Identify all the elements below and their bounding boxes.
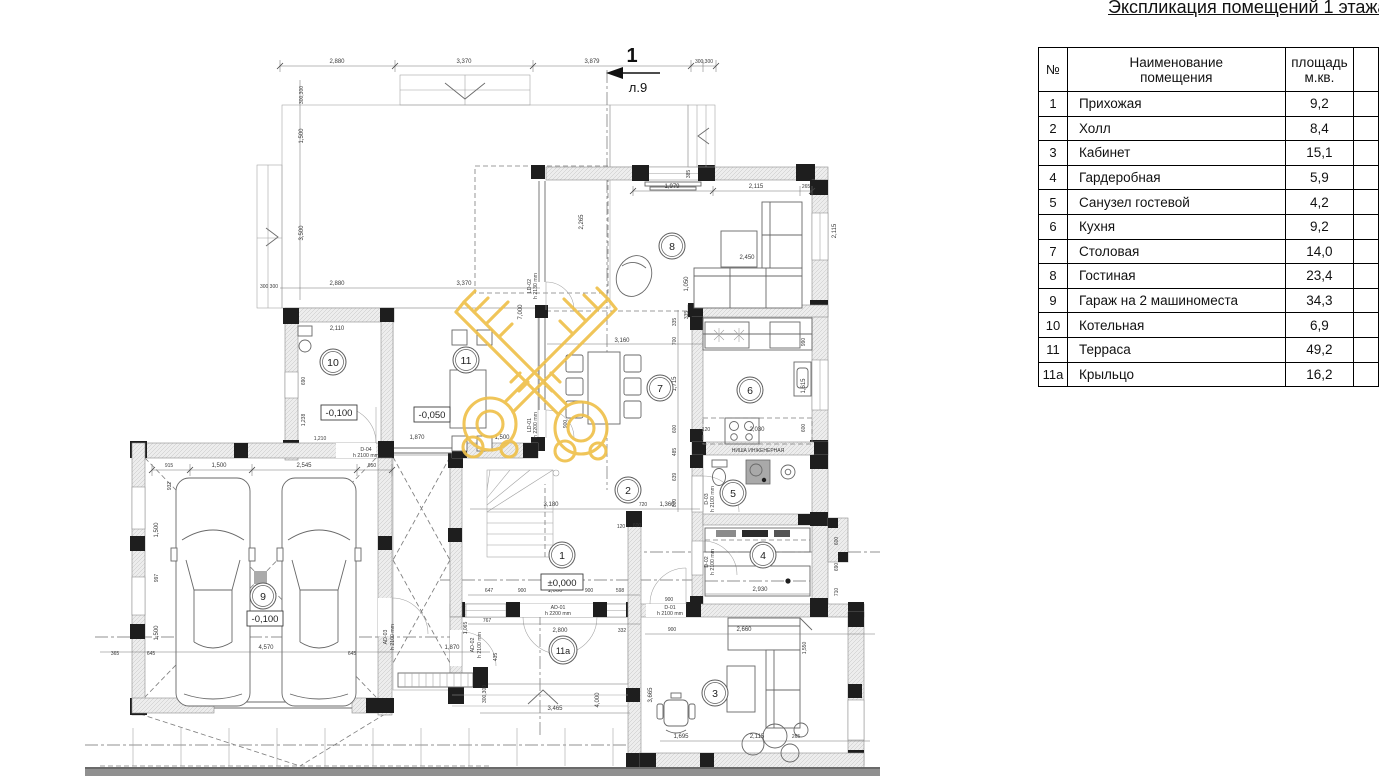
svg-text:932: 932 xyxy=(167,482,173,491)
svg-text:120: 120 xyxy=(702,427,711,433)
elevation-entry: ±0,000 xyxy=(541,574,583,590)
svg-text:3,180: 3,180 xyxy=(543,502,559,508)
desk-chair xyxy=(657,693,695,733)
svg-text:332: 332 xyxy=(618,628,627,634)
svg-text:3,665: 3,665 xyxy=(648,687,654,703)
svg-text:4,000: 4,000 xyxy=(595,692,601,708)
room-circle-11a: 11а xyxy=(549,636,577,664)
svg-text:600: 600 xyxy=(672,425,678,434)
svg-text:1,695: 1,695 xyxy=(673,734,689,740)
svg-text:600: 600 xyxy=(834,537,840,546)
floor-plan: 2,880 3,370 3,879 300,300 300,300 1,500 … xyxy=(0,0,900,782)
svg-text:2,110: 2,110 xyxy=(330,326,345,332)
elevation-boiler: -0,100 xyxy=(321,405,357,420)
svg-text:2,030: 2,030 xyxy=(749,427,765,433)
niche-label: НИША ИНЖЕНЕРНАЯ xyxy=(732,448,785,454)
svg-text:1,500: 1,500 xyxy=(211,463,227,469)
room-circle-8: 8 xyxy=(659,233,685,259)
svg-text:1,065: 1,065 xyxy=(463,622,469,635)
drawing-sheet: 2,880 3,370 3,879 300,300 300,300 1,500 … xyxy=(0,0,1379,782)
svg-text:AD-02: AD-02 xyxy=(470,638,476,653)
svg-text:990: 990 xyxy=(801,338,807,347)
table-row: 7Столовая14,0 xyxy=(1039,239,1379,264)
svg-text:AD-03: AD-03 xyxy=(383,630,389,645)
svg-text:710: 710 xyxy=(834,588,840,597)
svg-text:600: 600 xyxy=(801,424,807,433)
svg-text:690: 690 xyxy=(834,563,840,572)
svg-text:±0,000: ±0,000 xyxy=(548,578,577,589)
coffee-table xyxy=(721,231,757,267)
svg-text:1,238: 1,238 xyxy=(301,414,307,427)
svg-text:997: 997 xyxy=(154,574,160,583)
svg-text:h 2100 mm: h 2100 mm xyxy=(710,549,716,575)
svg-text:265: 265 xyxy=(802,184,811,190)
svg-text:-0,050: -0,050 xyxy=(419,410,446,421)
svg-text:300 300: 300 300 xyxy=(260,284,278,290)
room-circle-2: 2 xyxy=(615,477,641,503)
table-body: 1Прихожая9,22Холл8,43Кабинет15,14Гардеро… xyxy=(1039,92,1379,387)
car-2 xyxy=(277,478,361,706)
svg-text:335: 335 xyxy=(684,311,690,320)
svg-text:1,500: 1,500 xyxy=(154,625,160,641)
svg-text:2,660: 2,660 xyxy=(736,627,752,633)
svg-text:1,210: 1,210 xyxy=(314,436,327,442)
svg-text:900: 900 xyxy=(585,588,594,594)
svg-text:120: 120 xyxy=(617,524,626,530)
svg-text:720: 720 xyxy=(639,502,648,508)
svg-text:385: 385 xyxy=(686,170,692,179)
svg-text:2: 2 xyxy=(625,485,631,497)
svg-text:h 2100 mm: h 2100 mm xyxy=(657,611,683,617)
svg-text:6: 6 xyxy=(747,385,753,397)
svg-text:5: 5 xyxy=(730,488,736,500)
room-circle-7: 7 xyxy=(647,375,673,401)
svg-text:598: 598 xyxy=(616,588,625,594)
table-row: 6Кухня9,2 xyxy=(1039,214,1379,239)
svg-text:300,300: 300,300 xyxy=(482,685,488,703)
room-circle-3: 3 xyxy=(702,680,728,706)
svg-text:h 2200 mm: h 2200 mm xyxy=(533,412,539,438)
room-circle-11: 11 xyxy=(453,347,479,373)
svg-text:1,550: 1,550 xyxy=(802,642,808,655)
col-header-extra xyxy=(1354,48,1379,92)
room-circle-5: 5 xyxy=(720,480,746,506)
svg-text:900: 900 xyxy=(518,588,527,594)
svg-text:-0,100: -0,100 xyxy=(326,408,353,419)
svg-text:2,880: 2,880 xyxy=(329,281,345,287)
svg-text:2,880: 2,880 xyxy=(329,59,345,65)
svg-text:2,115: 2,115 xyxy=(749,184,764,190)
svg-text:600: 600 xyxy=(633,523,642,529)
svg-text:л.9: л.9 xyxy=(629,80,647,95)
room-circle-10: 10 xyxy=(320,349,346,375)
room-circle-1: 1 xyxy=(549,542,575,568)
svg-text:639: 639 xyxy=(672,473,678,482)
svg-text:1,870: 1,870 xyxy=(409,435,425,441)
svg-text:647: 647 xyxy=(485,588,494,594)
svg-text:1: 1 xyxy=(559,550,565,562)
svg-text:2,800: 2,800 xyxy=(552,628,568,634)
svg-text:1,500: 1,500 xyxy=(299,128,305,144)
svg-text:2,545: 2,545 xyxy=(296,463,312,469)
svg-text:4: 4 xyxy=(760,550,766,562)
svg-text:300,300: 300,300 xyxy=(299,86,305,104)
explication-title: Экспликация помещений 1 этажа xyxy=(1108,0,1379,18)
table-row: 10Котельная6,9 xyxy=(1039,313,1379,338)
table-row: 11аКрыльцо16,2 xyxy=(1039,362,1379,387)
svg-text:8: 8 xyxy=(669,241,675,253)
svg-text:h 2200 mm: h 2200 mm xyxy=(545,611,571,617)
svg-text:2,115: 2,115 xyxy=(750,734,765,740)
table-row: 1Прихожая9,2 xyxy=(1039,92,1379,117)
svg-text:690: 690 xyxy=(301,377,307,386)
svg-text:3,500: 3,500 xyxy=(299,225,305,241)
section-marker: 1 л.9 xyxy=(606,45,660,95)
col-header-name: Наименование помещения xyxy=(1067,48,1285,92)
svg-text:2,930: 2,930 xyxy=(752,587,768,593)
svg-text:1,050: 1,050 xyxy=(684,276,690,292)
svg-text:435: 435 xyxy=(493,653,499,662)
col-header-area: площадь м.кв. xyxy=(1285,48,1354,92)
svg-text:7: 7 xyxy=(657,383,663,395)
svg-text:645: 645 xyxy=(348,651,357,657)
svg-text:h 2100 mm: h 2100 mm xyxy=(353,453,379,459)
svg-text:3: 3 xyxy=(712,688,718,700)
svg-text:10: 10 xyxy=(327,357,339,369)
svg-text:2,450: 2,450 xyxy=(739,255,755,261)
svg-text:1,360: 1,360 xyxy=(659,502,675,508)
svg-text:950: 950 xyxy=(368,463,377,469)
stairs xyxy=(487,470,559,557)
table-row: 2Холл8,4 xyxy=(1039,116,1379,141)
svg-text:1,500: 1,500 xyxy=(154,522,160,538)
svg-text:645: 645 xyxy=(147,651,156,657)
svg-text:915: 915 xyxy=(165,463,174,469)
car-1 xyxy=(171,478,255,706)
svg-text:11: 11 xyxy=(461,355,472,367)
svg-text:3,370: 3,370 xyxy=(456,59,472,65)
svg-text:900: 900 xyxy=(668,627,677,633)
svg-text:365: 365 xyxy=(111,651,120,657)
svg-text:1: 1 xyxy=(626,45,637,67)
svg-text:4,570: 4,570 xyxy=(258,645,274,651)
table-row: 3Кабинет15,1 xyxy=(1039,141,1379,166)
col-header-number: № xyxy=(1039,48,1068,92)
svg-text:9: 9 xyxy=(260,591,266,603)
svg-text:1,870: 1,870 xyxy=(444,645,460,651)
svg-text:-0,100: -0,100 xyxy=(252,614,279,625)
svg-text:300,300: 300,300 xyxy=(695,59,713,65)
elevation-terrace: -0,050 xyxy=(414,407,450,422)
svg-text:3,370: 3,370 xyxy=(456,281,472,287)
elevation-garage: -0,100 xyxy=(247,611,283,626)
wc-fixtures xyxy=(712,460,795,486)
svg-text:3,465: 3,465 xyxy=(547,706,563,712)
table-row: 11Терраса49,2 xyxy=(1039,337,1379,362)
svg-text:2,265: 2,265 xyxy=(579,214,585,230)
svg-text:7,000: 7,000 xyxy=(518,304,524,320)
svg-text:h 2100 mm: h 2100 mm xyxy=(710,486,716,512)
table-row: 8Гостиная23,4 xyxy=(1039,264,1379,289)
study xyxy=(657,618,812,762)
room-circle-6: 6 xyxy=(737,377,763,403)
svg-text:265: 265 xyxy=(792,734,801,740)
svg-text:2,115: 2,115 xyxy=(832,223,838,238)
table-row: 4Гардеробная5,9 xyxy=(1039,165,1379,190)
svg-text:767: 767 xyxy=(483,618,492,624)
svg-text:1,615: 1,615 xyxy=(801,378,807,394)
armchair xyxy=(610,250,658,302)
svg-text:3,160: 3,160 xyxy=(614,338,630,344)
svg-text:h 2100 mm: h 2100 mm xyxy=(477,632,483,658)
explication-table: № Наименование помещения площадь м.кв. 1… xyxy=(1038,47,1379,387)
svg-text:700: 700 xyxy=(672,337,678,346)
svg-text:900: 900 xyxy=(665,597,674,603)
room-circle-9: 9 xyxy=(250,583,276,609)
svg-text:485: 485 xyxy=(672,448,678,457)
svg-text:11а: 11а xyxy=(556,646,570,656)
boiler xyxy=(298,326,312,352)
svg-text:h 2130 mm: h 2130 mm xyxy=(533,273,539,299)
room-circle-4: 4 xyxy=(750,542,776,568)
svg-text:335: 335 xyxy=(672,318,678,327)
svg-text:3,879: 3,879 xyxy=(584,59,600,65)
svg-text:1,979: 1,979 xyxy=(664,184,680,190)
table-row: 5Санузел гостевой4,2 xyxy=(1039,190,1379,215)
table-row: 9Гараж на 2 машиноместа34,3 xyxy=(1039,288,1379,313)
svg-text:h 2100 mm: h 2100 mm xyxy=(390,624,396,650)
explication-header: № Наименование помещения площадь м.кв. xyxy=(1039,48,1379,92)
